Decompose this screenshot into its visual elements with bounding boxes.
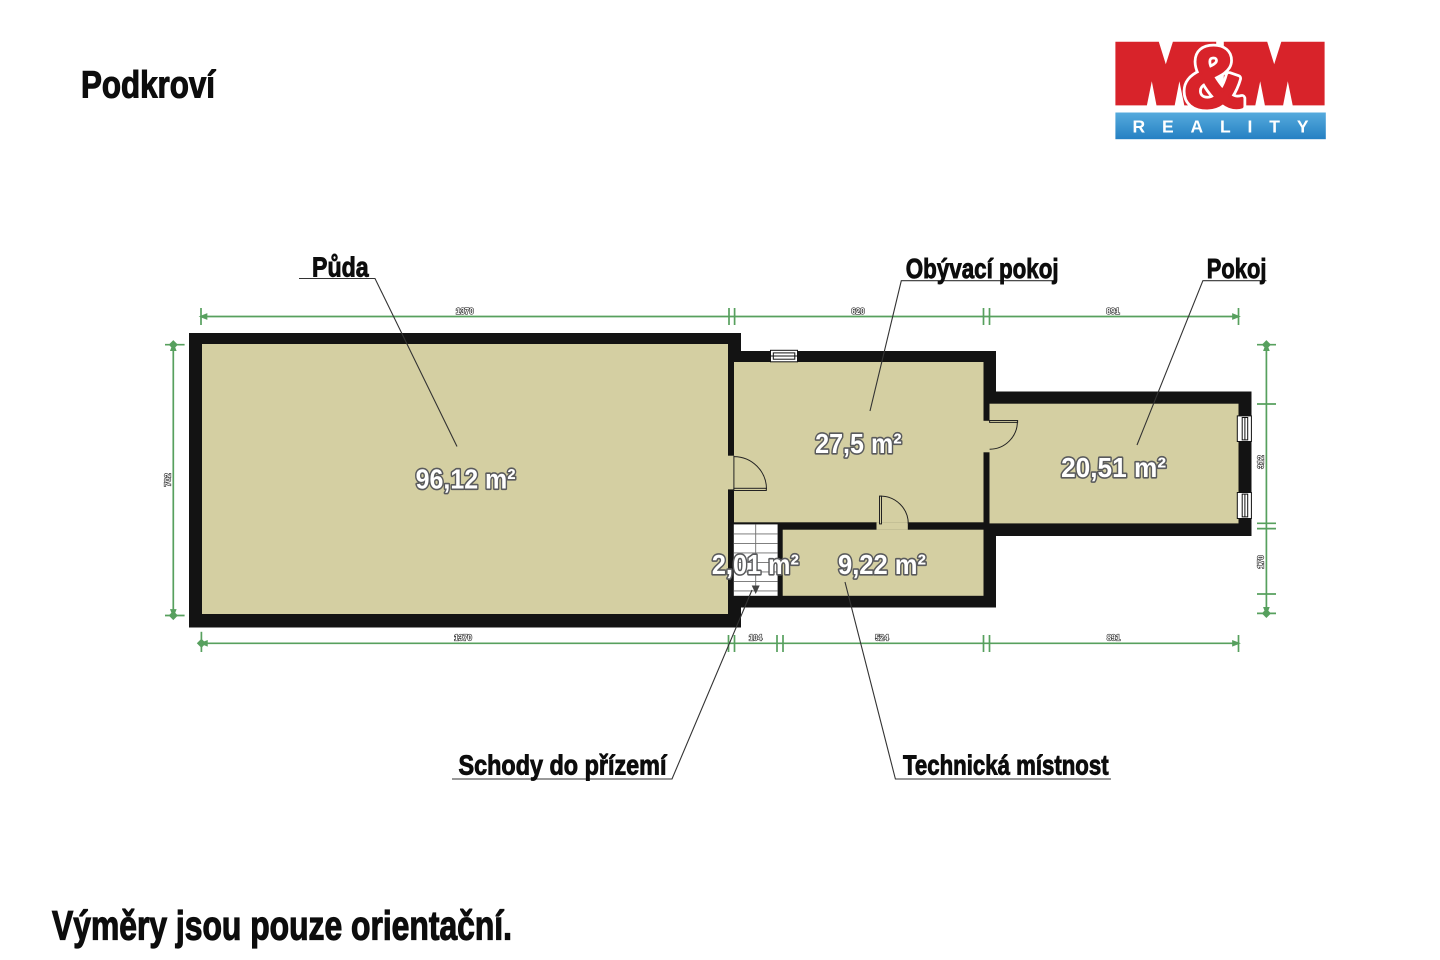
- svg-text:9,22 m²: 9,22 m²: [838, 549, 926, 580]
- svg-text:702: 702: [163, 473, 172, 487]
- svg-text:Půda: Půda: [312, 252, 369, 283]
- svg-text:Výměry jsou pouze orientační.: Výměry jsou pouze orientační.: [52, 903, 512, 949]
- svg-text:2,01 m²: 2,01 m²: [712, 549, 799, 580]
- svg-text:Obývací pokoj: Obývací pokoj: [906, 253, 1059, 284]
- svg-text:170: 170: [1256, 555, 1265, 569]
- svg-text:Schody do přízemí: Schody do přízemí: [459, 750, 668, 781]
- svg-text:Pokoj: Pokoj: [1207, 253, 1267, 284]
- svg-text:620: 620: [851, 307, 865, 316]
- svg-text:Technická místnost: Technická místnost: [903, 750, 1109, 781]
- svg-text:96,12 m²: 96,12 m²: [416, 464, 516, 495]
- svg-text:&: &: [1183, 31, 1244, 126]
- svg-text:524: 524: [875, 633, 889, 642]
- svg-text:27,5 m²: 27,5 m²: [815, 428, 902, 459]
- svg-text:891: 891: [1106, 307, 1120, 316]
- svg-text:20,51 m²: 20,51 m²: [1061, 452, 1166, 483]
- svg-text:Podkroví: Podkroví: [81, 65, 216, 107]
- svg-text:1370: 1370: [454, 633, 472, 642]
- svg-text:1370: 1370: [456, 307, 474, 316]
- svg-text:891: 891: [1107, 633, 1121, 642]
- svg-text:312: 312: [1256, 455, 1265, 469]
- svg-text:104: 104: [749, 633, 763, 642]
